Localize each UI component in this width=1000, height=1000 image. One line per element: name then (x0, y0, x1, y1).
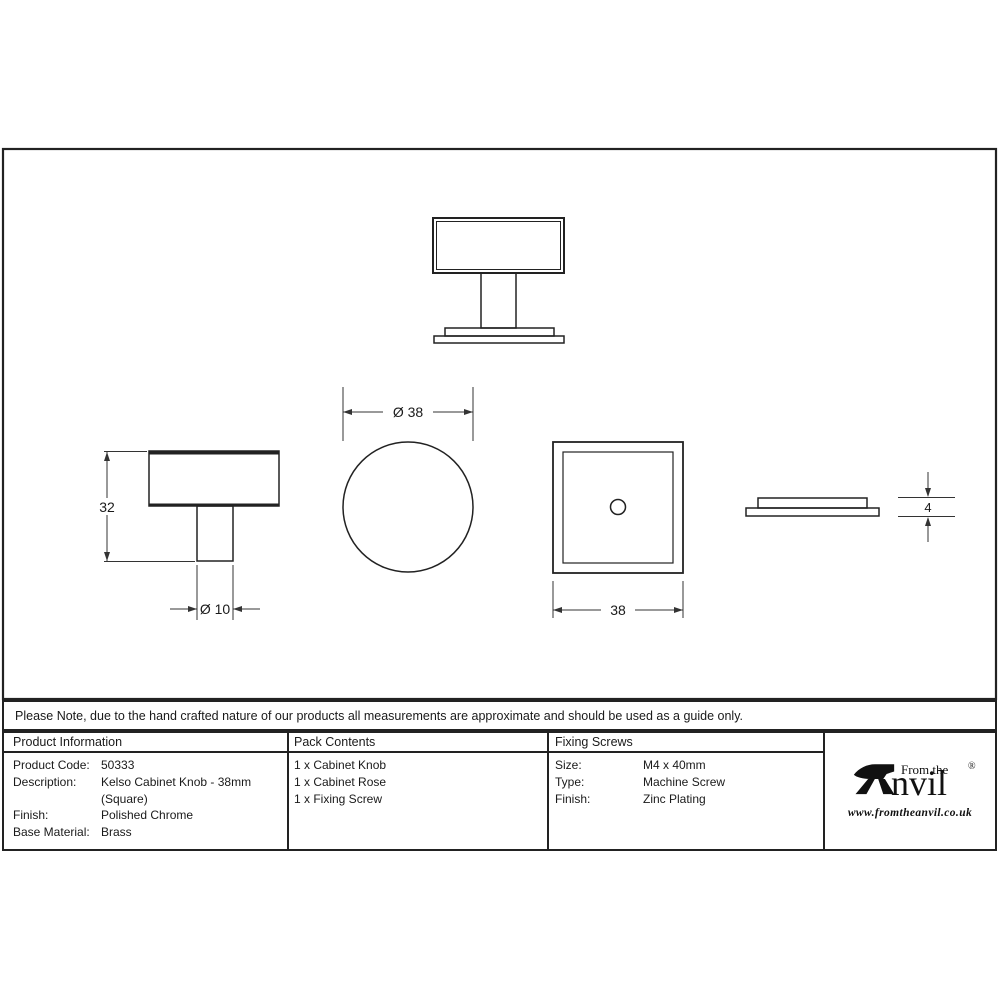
logo-website: www.fromtheanvil.co.uk (825, 807, 995, 819)
row-value: (Square) (101, 791, 148, 808)
brand-logo: From the nvil ® www.fromtheanvil.co.uk (825, 733, 995, 849)
dim-stem-diameter-label: Ø 10 (200, 601, 231, 617)
dim-rose-thickness-label: 4 (924, 500, 931, 515)
row-value: Kelso Cabinet Knob - 38mm (101, 774, 251, 791)
row-value: Zinc Plating (643, 791, 706, 808)
knob-stem-side (197, 506, 233, 561)
row-value: Polished Chrome (101, 807, 193, 824)
list-item: 1 x Fixing Screw (294, 791, 534, 808)
assembled-view (433, 218, 564, 343)
arrowhead-left (553, 607, 562, 613)
measurement-note: Please Note, due to the hand crafted nat… (2, 700, 997, 731)
pack-contents-rows: 1 x Cabinet Knob 1 x Cabinet Rose 1 x Fi… (294, 757, 534, 807)
rose-lower-tier (434, 336, 564, 343)
row-label (13, 791, 101, 808)
table-row: Base Material: Brass (13, 824, 283, 841)
list-item: 1 x Cabinet Knob (294, 757, 534, 774)
table-row: Finish: Zinc Plating (555, 791, 810, 808)
arrowhead-right (464, 409, 473, 415)
product-information-header: Product Information (13, 735, 122, 749)
row-value: Machine Screw (643, 774, 725, 791)
row-label: Size: (555, 757, 643, 774)
product-spec-sheet: 32 Ø 10 Ø 38 (0, 0, 1000, 1000)
note-text: Please Note, due to the hand crafted nat… (15, 709, 743, 723)
logo-brand-text: nvil (891, 766, 947, 800)
arrowhead-left (343, 409, 352, 415)
arrowhead-left (233, 606, 242, 612)
registered-mark: ® (968, 761, 976, 772)
square-knob-outer (553, 442, 683, 573)
screw-hole (611, 500, 626, 515)
dim-square-width-label: 38 (610, 602, 626, 618)
arrowhead-right (188, 606, 197, 612)
table-row: Type: Machine Screw (555, 774, 810, 791)
table-row: (Square) (13, 791, 283, 808)
row-label: Product Code: (13, 757, 101, 774)
arrowhead-down (104, 552, 110, 561)
front-view-square: 38 (553, 442, 683, 618)
square-knob-inner (563, 452, 673, 563)
side-view: 32 Ø 10 (95, 451, 279, 620)
row-label: Finish: (13, 807, 101, 824)
table-row: Description: Kelso Cabinet Knob - 38mm (13, 774, 283, 791)
spec-table: Product Information Pack Contents Fixing… (2, 731, 997, 851)
arrowhead-right (674, 607, 683, 613)
anvil-icon (853, 762, 895, 796)
rose-profile-view: 4 (746, 472, 955, 542)
knob-head-inner-edge (437, 222, 561, 270)
arrowhead-up (925, 517, 931, 526)
knob-face-circle (343, 442, 473, 572)
fixing-screws-rows: Size: M4 x 40mm Type: Machine Screw Fini… (555, 757, 810, 807)
knob-stem (481, 273, 516, 328)
dim-knob-diameter-label: Ø 38 (393, 404, 424, 420)
row-label: Base Material: (13, 824, 101, 841)
drawing-frame (3, 149, 996, 699)
pack-contents-header: Pack Contents (294, 735, 375, 749)
fixing-screws-header: Fixing Screws (555, 735, 633, 749)
row-value: M4 x 40mm (643, 757, 706, 774)
dim-knob-height-label: 32 (99, 499, 115, 515)
front-view-round: Ø 38 (343, 387, 473, 572)
rose-lower-tier-profile (746, 508, 879, 516)
row-label: Finish: (555, 791, 643, 808)
product-information-rows: Product Code: 50333 Description: Kelso C… (13, 757, 283, 841)
row-value: 50333 (101, 757, 134, 774)
row-value: Brass (101, 824, 132, 841)
row-label: Type: (555, 774, 643, 791)
row-label: Description: (13, 774, 101, 791)
header-divider (4, 751, 823, 754)
rose-upper-tier (445, 328, 554, 336)
knob-head (433, 218, 564, 273)
table-row: Finish: Polished Chrome (13, 807, 283, 824)
arrowhead-down (925, 488, 931, 497)
knob-head-side (149, 451, 279, 506)
list-item: 1 x Cabinet Rose (294, 774, 534, 791)
table-row: Product Code: 50333 (13, 757, 283, 774)
table-row: Size: M4 x 40mm (555, 757, 810, 774)
arrowhead-up (104, 452, 110, 461)
rose-upper-tier-profile (758, 498, 867, 508)
